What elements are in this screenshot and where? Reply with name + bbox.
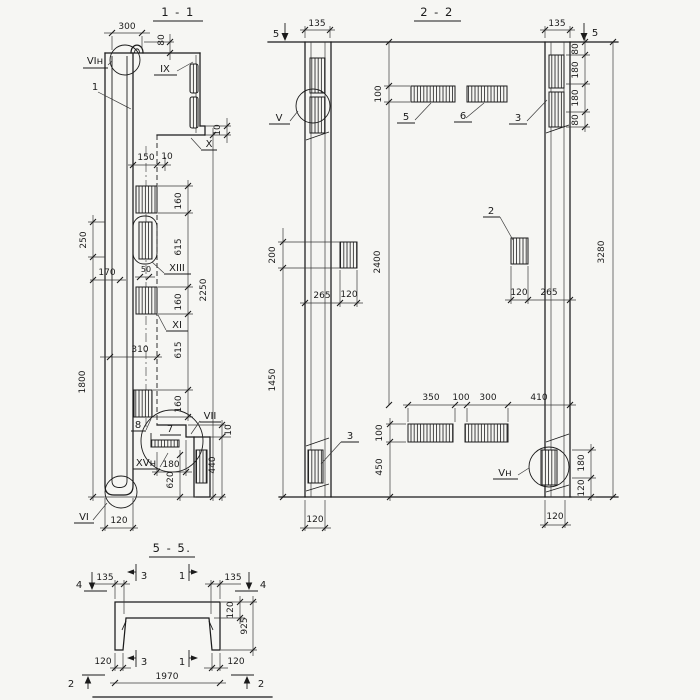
dim-620: 620 — [166, 471, 176, 488]
detail-circle-vi-top — [110, 45, 140, 75]
label-cut-4-r: 4 — [260, 580, 266, 591]
dim-120-bl: 120 — [94, 657, 111, 667]
dim-170: 170 — [98, 268, 115, 278]
label-v-bot: Vн — [498, 468, 511, 479]
dim-80-a: 80 — [571, 43, 581, 55]
label-cut-1-top: 1 — [179, 571, 185, 582]
dim-10-mid: 10 — [161, 152, 173, 162]
section-2-2-title: 2 - 2 — [420, 5, 454, 19]
label-item-3-top: 3 — [515, 113, 521, 124]
dim-250: 250 — [79, 231, 89, 248]
embed-plate — [139, 222, 152, 259]
drawing-sheet: 1 - 1 — [0, 0, 700, 700]
detail-circle-vi-bot — [105, 476, 137, 508]
embed-plate — [310, 58, 325, 93]
dim-120-br: 120 — [577, 479, 587, 496]
weld-strip — [151, 440, 179, 447]
label-cut-4-l: 4 — [76, 580, 82, 591]
label-xiii: XIII — [169, 263, 185, 274]
embed-plate — [549, 55, 564, 88]
channel-profile — [115, 602, 220, 650]
dim-120-bl: 120 — [306, 515, 323, 525]
dim-1450: 1450 — [268, 368, 278, 391]
embed-plate — [549, 92, 564, 127]
label-ix: IX — [160, 64, 170, 75]
corner-chamfers — [122, 621, 213, 630]
leaders-2-2 — [290, 100, 547, 475]
embed-plate — [541, 450, 557, 485]
cut-mark-1-top — [189, 564, 198, 581]
dim-150: 150 — [137, 153, 154, 163]
label-x: X — [206, 139, 213, 150]
dim-160-a: 160 — [174, 192, 184, 209]
dim-120-br2: 120 — [546, 512, 563, 522]
dim-120: 120 — [110, 516, 127, 526]
label-item-3-bot: 3 — [347, 431, 353, 442]
dim-135-r: 135 — [548, 19, 565, 29]
dim-120-br: 120 — [227, 657, 244, 667]
dim-200: 200 — [268, 246, 278, 263]
label-v-top: V — [276, 113, 283, 124]
label-cut-5-l: 5 — [273, 29, 279, 40]
dim-410: 410 — [530, 393, 547, 403]
dim-300: 300 — [479, 393, 496, 403]
dim-ticks-1-1 — [90, 30, 230, 531]
embed-plate — [196, 450, 207, 483]
dim-310: 310 — [131, 345, 148, 355]
embed-plate-5 — [411, 86, 455, 102]
section-1-1: 1 - 1 — [74, 5, 234, 531]
dim-180-a: 180 — [571, 61, 581, 78]
dim-120-mr: 120 — [510, 288, 527, 298]
cut-mark-1-bot — [189, 650, 198, 667]
dim-80: 80 — [157, 34, 167, 46]
label-item-5: 5 — [403, 112, 409, 123]
dim-265-r: 265 — [540, 288, 557, 298]
embed-plate-2 — [511, 238, 528, 264]
embed-plate — [190, 97, 198, 128]
dim-180-b: 180 — [571, 89, 581, 106]
dim-615-a: 615 — [174, 238, 184, 255]
label-cut-2-l: 2 — [68, 679, 74, 690]
dim-2250: 2250 — [199, 278, 209, 301]
dim-ticks-5-5 — [112, 581, 256, 686]
embed-plate — [408, 424, 453, 442]
label-cut-3-bot: 3 — [141, 657, 147, 668]
dim-100-low: 100 — [375, 424, 385, 441]
dim-2400: 2400 — [373, 250, 383, 273]
cut-mark-3-top — [127, 564, 136, 581]
section-5-5-title: 5 - 5. — [153, 541, 192, 555]
dim-160-c: 160 — [174, 395, 184, 412]
label-cut-1-bot: 1 — [179, 657, 185, 668]
dim-925: 925 — [240, 617, 250, 634]
dim-100-top: 100 — [374, 85, 384, 102]
dim-135-r: 135 — [224, 573, 241, 583]
dim-80-b: 80 — [571, 114, 581, 126]
cut-mark-2-left — [82, 675, 105, 689]
embed-plate — [136, 287, 157, 314]
label-vi-bot: VI — [79, 512, 89, 523]
dim-440: 440 — [208, 456, 218, 473]
dim-lines-5-5 — [95, 580, 257, 683]
dim-265-l: 265 — [313, 291, 330, 301]
dim-10-top: 10 — [213, 124, 223, 136]
embed-plate — [136, 186, 157, 213]
dim-1800: 1800 — [78, 370, 88, 393]
label-cut-3-top: 3 — [141, 571, 147, 582]
dim-300: 300 — [118, 22, 135, 32]
label-item-1: 1 — [92, 82, 98, 93]
dim-135-l: 135 — [96, 573, 113, 583]
label-vii: VII — [204, 411, 217, 422]
cut-mark-5-right — [581, 23, 588, 41]
dim-3280: 3280 — [597, 240, 607, 263]
dim-350: 350 — [422, 393, 439, 403]
cut-mark-5-left — [282, 23, 289, 41]
label-item-7: 7 — [167, 424, 173, 435]
embed-plate — [465, 424, 508, 442]
dim-100-row: 100 — [452, 393, 469, 403]
drawing-canvas: 1 - 1 — [0, 0, 700, 700]
dim-135-l: 135 — [308, 19, 325, 29]
dim-120-ml: 120 — [340, 290, 357, 300]
label-xi: XI — [172, 320, 182, 331]
dim-615-b: 615 — [174, 341, 184, 358]
label-vi-top: VIн — [87, 56, 103, 67]
dim-120-v: 120 — [226, 601, 236, 618]
label-item-8: 8 — [135, 420, 141, 431]
dim-10-bot: 10 — [224, 424, 234, 436]
label-cut-2-r: 2 — [258, 679, 264, 690]
embed-plate — [308, 450, 323, 483]
section-2-2: 2 - 2 — [268, 5, 618, 531]
embed-plate — [134, 390, 152, 417]
dim-180-br: 180 — [577, 454, 587, 471]
dim-160-b: 160 — [174, 293, 184, 310]
cut-mark-3-bot — [127, 650, 136, 667]
label-item-6: 6 — [460, 111, 466, 122]
label-cut-5-r: 5 — [592, 28, 598, 39]
cut-mark-2-right — [231, 675, 254, 689]
embed-plate — [340, 242, 357, 268]
section-5-5: 5 - 5. — [68, 541, 272, 697]
dim-180: 180 — [162, 460, 179, 470]
section-1-1-title: 1 - 1 — [161, 5, 195, 19]
dim-50: 50 — [141, 265, 151, 274]
label-item-2: 2 — [488, 206, 494, 217]
dim-450: 450 — [375, 458, 385, 475]
label-xv: XVн — [136, 458, 156, 469]
embed-plate-6 — [467, 86, 507, 102]
dim-1970: 1970 — [156, 672, 179, 682]
embed-plate — [310, 97, 325, 133]
embed-plate — [190, 64, 198, 93]
